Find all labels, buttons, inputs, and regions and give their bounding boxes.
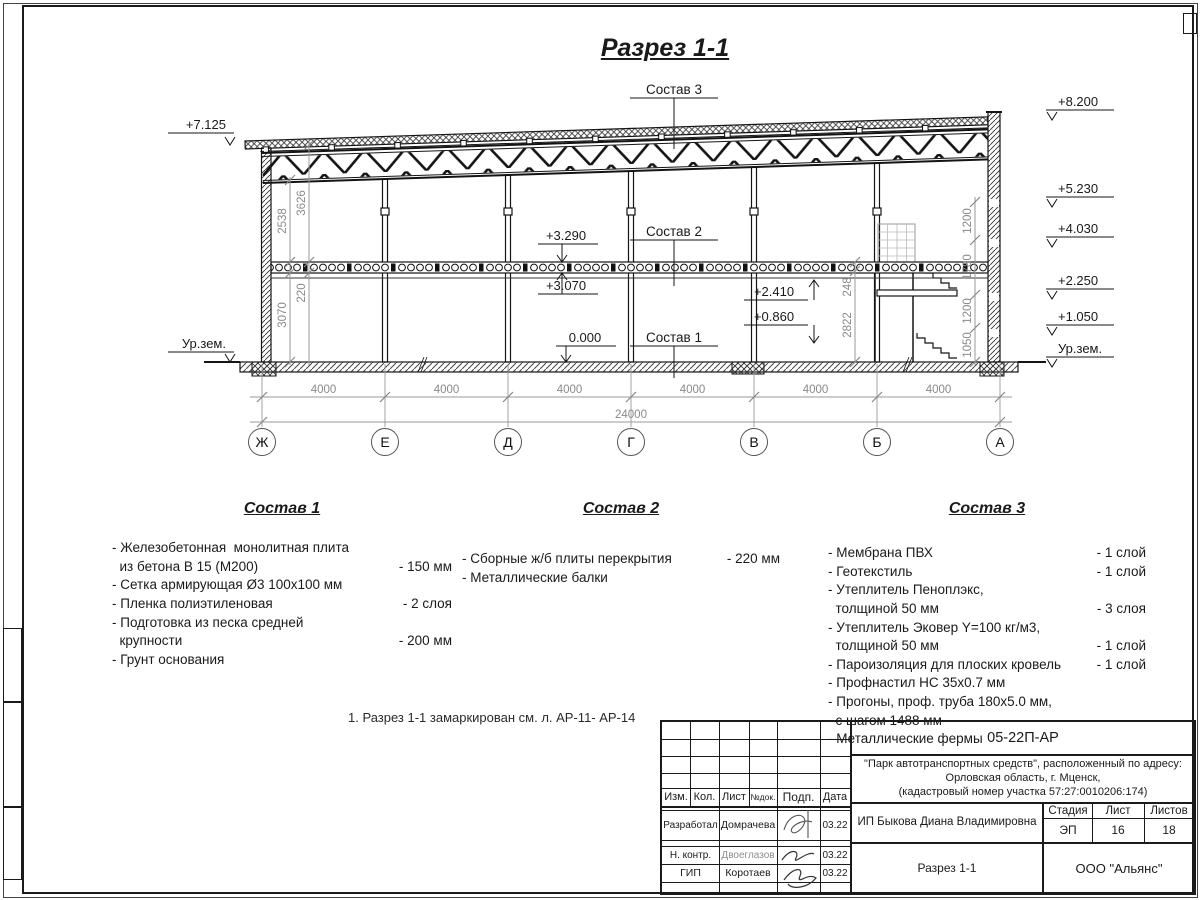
- legend-item: - Мембрана ПВХ- 1 слой: [828, 544, 1146, 563]
- axis-label: Б: [872, 434, 881, 450]
- tb-role: Н. контр.: [662, 846, 719, 864]
- elevation-label: +2.250: [1058, 273, 1098, 288]
- dim-label: 1780: [962, 254, 974, 280]
- frame-corner-box: [1183, 13, 1197, 34]
- dim-label: 3070: [277, 302, 289, 328]
- dim-label: 24000: [615, 409, 647, 421]
- tb-doc-number: 05-22П-АР: [852, 722, 1194, 754]
- frame-side-box: [3, 702, 22, 807]
- legend-section-3: Состав 3 - Мембрана ПВХ- 1 слой - Геотек…: [828, 500, 1146, 749]
- axis-label: Г: [627, 434, 635, 450]
- legend-item: - Профнастил НС 35х0.7 мм: [828, 674, 1146, 693]
- tb-name: Двоеглазов: [719, 846, 777, 864]
- tb-col-list: Лист: [719, 788, 749, 806]
- elevation-label: Ур.зем.: [1058, 341, 1102, 356]
- elevation-label: +0.860: [754, 309, 794, 324]
- elevation-label: +8.200: [1058, 94, 1098, 109]
- callout-label: Состав 3: [646, 82, 702, 97]
- elevation-label: +3.070: [546, 278, 586, 293]
- legend-section-1: Состав 1 - Железобетонная монолитная пли…: [112, 500, 452, 669]
- dim-label: 3626: [296, 190, 308, 216]
- staircase: [875, 224, 957, 362]
- ground-slab: [204, 357, 1046, 376]
- legend-title: Состав 1: [112, 500, 452, 518]
- legend-section-2: Состав 2 - Сборные ж/б плиты перекрытия-…: [462, 500, 780, 587]
- dim-label: 220: [296, 283, 308, 302]
- tb-date: 03.22: [820, 810, 850, 840]
- right-wall: [986, 112, 1002, 362]
- tb-date: 03.22: [820, 846, 850, 864]
- tb-date: 03.22: [820, 864, 850, 882]
- signature-icon: [778, 808, 820, 842]
- elevation-label: 0.000: [569, 330, 602, 345]
- legend-item: - Сетка армирующая Ø3 100х100 мм: [112, 576, 452, 595]
- dim-label: 4000: [557, 384, 583, 396]
- sheet-note: 1. Разрез 1-1 замаркирован см. л. АР-11-…: [348, 710, 635, 725]
- tb-name: Коротаев: [719, 864, 777, 882]
- tb-stage-label: Стадия: [1044, 803, 1092, 818]
- floor-slab: [271, 262, 988, 273]
- axis-label: А: [995, 434, 1005, 450]
- legend-item: - Пленка полиэтиленовая- 2 слоя: [112, 595, 452, 614]
- frame-side-box: [3, 807, 22, 880]
- elevation-label: Ур.зем.: [182, 336, 226, 351]
- tb-stage-value: ЭП: [1044, 819, 1092, 841]
- dim-label: 4000: [680, 384, 706, 396]
- axis-label: В: [749, 434, 758, 450]
- legend-title: Состав 3: [828, 500, 1146, 518]
- axis-label: Ж: [256, 434, 269, 450]
- callout-label: Состав 1: [646, 330, 702, 345]
- elevation-marks-left: [168, 133, 235, 362]
- legend-item: - Грунт основания: [112, 651, 452, 670]
- legend-item: - Геотекстиль- 1 слой: [828, 563, 1146, 582]
- elevation-marks-right: [1046, 110, 1114, 367]
- legend-title: Состав 2: [462, 500, 780, 518]
- dim-label: 4000: [434, 384, 460, 396]
- elevation-label: +3.290: [546, 228, 586, 243]
- legend-item: - Подготовка из песка средней крупности-…: [112, 614, 452, 651]
- elevation-label: +2.410: [754, 284, 794, 299]
- tb-col-izm: Изм.: [662, 788, 690, 806]
- section-drawing: 2538 3626 220 3070 1200 1780 1200 1050 2…: [0, 75, 1200, 475]
- dim-label: 4000: [311, 384, 337, 396]
- tb-sheet-value: 16: [1092, 819, 1144, 841]
- legend-item: - Металлические балки: [462, 569, 780, 588]
- tb-project: "Парк автотранспортных средств", располо…: [854, 755, 1192, 801]
- dim-label: 1200: [962, 298, 974, 324]
- dim-label: 248: [842, 277, 854, 296]
- legend-item: - Утеплитель Эковер Y=100 кг/м3, толщино…: [828, 619, 1146, 656]
- tb-company: ООО "Альянс": [1044, 843, 1194, 893]
- legend-item: - Пароизоляция для плоских кровель- 1 сл…: [828, 656, 1146, 675]
- axis-label: Е: [380, 434, 389, 450]
- tb-col-kol: Кол.: [690, 788, 719, 806]
- frame-side-box: [3, 628, 22, 702]
- elevation-label: +7.125: [186, 117, 226, 132]
- tb-name: Домрачева: [719, 810, 777, 840]
- elevation-label: +5.230: [1058, 181, 1098, 196]
- legend-item: - Железобетонная монолитная плита из бет…: [112, 539, 452, 576]
- tb-drawing-title: Разрез 1-1: [852, 843, 1042, 893]
- dim-label: 4000: [926, 384, 952, 396]
- tb-col-podp: Подп.: [777, 788, 820, 806]
- tb-col-doc: №док.: [749, 788, 777, 806]
- signature-icon: [778, 844, 820, 892]
- axis-label: Д: [503, 434, 513, 450]
- legend-item: - Сборные ж/б плиты перекрытия- 220 мм: [462, 550, 780, 569]
- tb-role: Разработал: [662, 810, 719, 840]
- title-block: Изм. Кол. Лист №док. Подп. Дата Разработ…: [660, 720, 1196, 895]
- legend-item: - Утеплитель Пеноплэкс, толщиной 50 мм- …: [828, 581, 1146, 618]
- dim-label: 2822: [842, 312, 854, 338]
- elevation-label: +1.050: [1058, 309, 1098, 324]
- tb-col-data: Дата: [820, 788, 850, 806]
- dim-label: 1200: [962, 208, 974, 234]
- dim-label: 4000: [803, 384, 829, 396]
- tb-sheets-value: 18: [1144, 819, 1194, 841]
- tb-sheet-label: Лист: [1092, 803, 1144, 818]
- page-title: Разрез 1-1: [530, 34, 800, 63]
- dim-label: 2538: [277, 208, 289, 234]
- tb-client: ИП Быкова Диана Владимировна: [852, 803, 1042, 841]
- tb-role: ГИП: [662, 864, 719, 882]
- callout-label: Состав 2: [646, 224, 702, 239]
- tb-sheets-label: Листов: [1144, 803, 1194, 818]
- dim-label: 1050: [962, 332, 974, 358]
- elevation-label: +4.030: [1058, 221, 1098, 236]
